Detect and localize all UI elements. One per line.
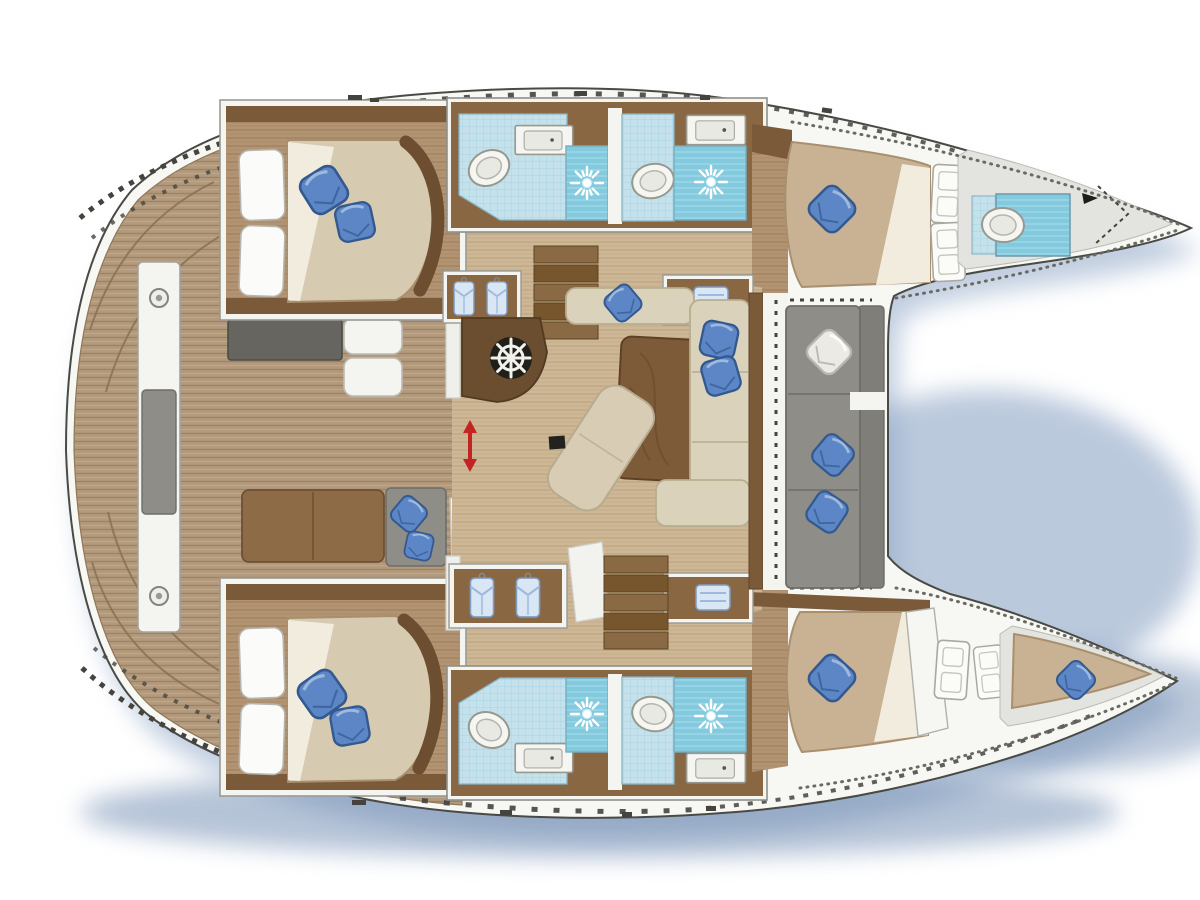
sofa-backrest <box>858 306 884 588</box>
sink-counter <box>515 126 573 155</box>
sink-counter <box>515 744 573 773</box>
starboard-aft-cabin <box>220 578 466 796</box>
port-aft-cabin <box>220 100 466 320</box>
hanging-shirt-icon <box>516 573 539 617</box>
cockpit-seat <box>344 318 402 354</box>
white-pillow <box>239 627 285 698</box>
hanging-shirt-icon <box>470 573 493 617</box>
bathroom-divider <box>608 108 622 224</box>
wardrobe-bottom <box>449 564 567 628</box>
sofa-notch <box>850 392 886 410</box>
blue-pillow <box>329 705 371 747</box>
sink-counter <box>687 115 746 144</box>
blue-pillow <box>403 530 435 562</box>
sunburst-drain-icon <box>695 166 727 198</box>
bulkhead <box>446 320 460 398</box>
round-cleat-icon <box>150 289 168 307</box>
platform-cushion <box>142 390 176 514</box>
cockpit-galley-unit <box>228 320 342 360</box>
cockpit-seat <box>344 358 402 396</box>
cabin-floor <box>752 606 788 772</box>
towel-cabinet-bottom <box>663 573 753 623</box>
wardrobe-top <box>443 271 521 323</box>
starboard-bathrooms <box>447 666 767 800</box>
port-bathrooms <box>447 98 767 232</box>
catamaran-floor-plan <box>0 0 1200 900</box>
white-pillow <box>239 149 285 220</box>
hanging-shirt-icon <box>487 278 507 315</box>
blue-pillow <box>334 201 377 244</box>
cabin-trim <box>226 106 460 122</box>
stairs-starboard <box>604 556 668 649</box>
hanging-shirt-icon <box>454 278 474 315</box>
sunburst-drain-icon <box>571 698 603 730</box>
blue-pillow <box>698 319 739 360</box>
forward-cockpit <box>749 293 886 589</box>
round-cleat-icon <box>150 587 168 605</box>
bathroom-divider <box>608 674 622 790</box>
floor-plan-page <box>0 0 1200 900</box>
sunburst-drain-icon <box>695 700 727 732</box>
double-door-panel <box>934 640 970 700</box>
folded-towel <box>696 585 730 610</box>
sunburst-drain-icon <box>571 167 603 199</box>
forward-bulkhead <box>749 293 763 589</box>
cabin-trim <box>226 584 460 600</box>
sink-counter <box>687 753 746 782</box>
floor-hatch <box>549 435 566 449</box>
white-pillow <box>239 703 285 774</box>
white-pillow <box>239 225 285 296</box>
ships-wheel-icon <box>490 337 532 379</box>
